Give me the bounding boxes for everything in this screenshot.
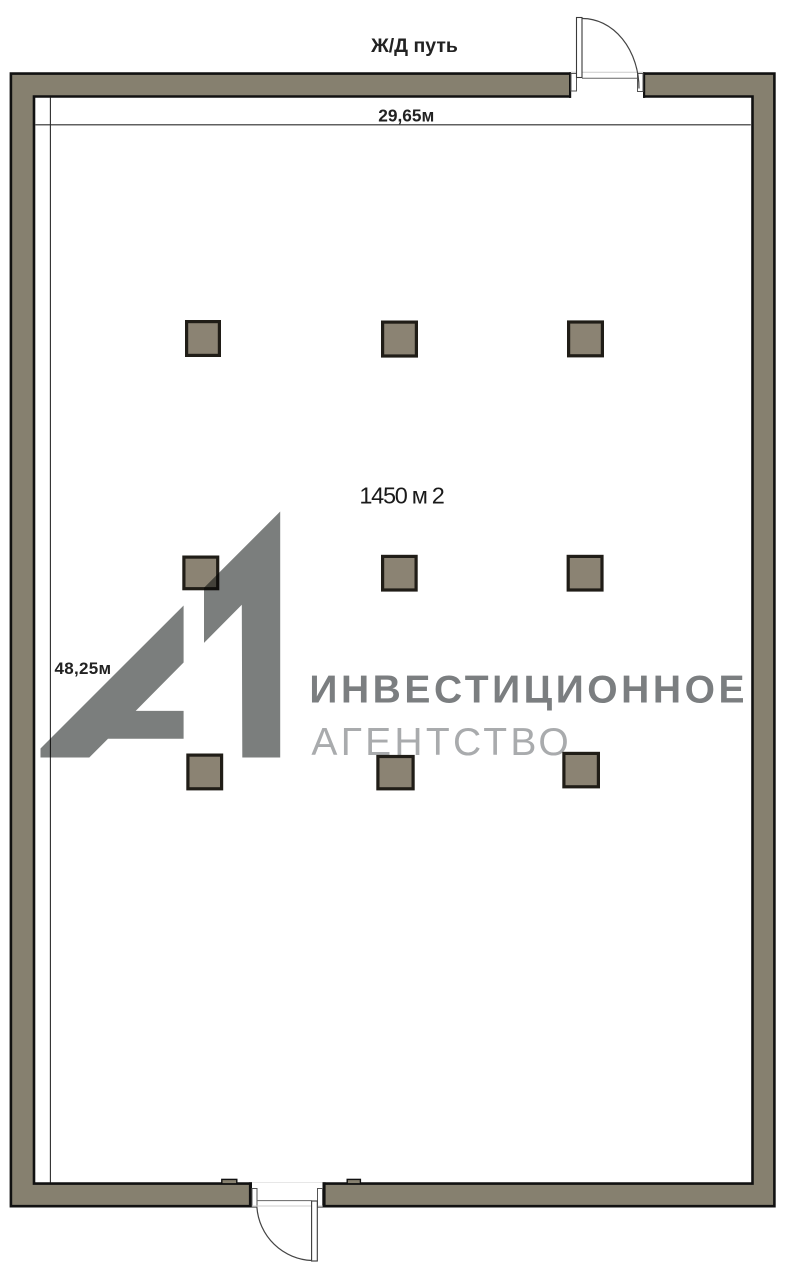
svg-text:Ж/Д путь: Ж/Д путь — [370, 35, 458, 57]
svg-text:1450 м 2: 1450 м 2 — [359, 483, 443, 509]
svg-text:48,25м: 48,25м — [55, 659, 112, 678]
svg-text:29,65м: 29,65м — [378, 106, 434, 126]
svg-text:АГЕНТСТВО: АГЕНТСТВО — [311, 721, 572, 764]
svg-text:ИНВЕСТИЦИОННОЕ: ИНВЕСТИЦИОННОЕ — [309, 669, 748, 712]
